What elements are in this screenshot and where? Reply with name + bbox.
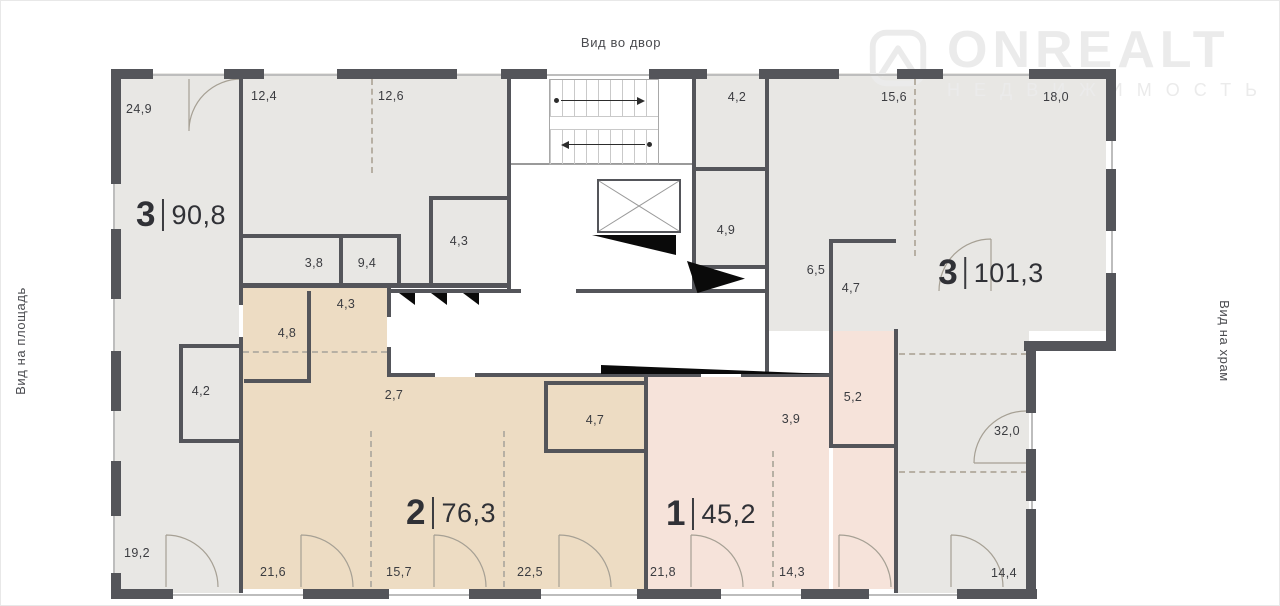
wall-segment [241, 283, 511, 288]
wall-pier [111, 351, 121, 411]
wall-pier [111, 461, 121, 516]
door-leaf-marker [399, 293, 415, 305]
floor-plan: ONREALT НЕДВИЖИМОСТЬ Вид во двор Вид на … [0, 0, 1280, 606]
room-area-label: 4,9 [717, 223, 736, 237]
window-line [111, 594, 1036, 596]
wall-segment [829, 444, 896, 448]
wall-segment [894, 329, 898, 593]
wall-segment [829, 239, 896, 243]
apartment-label-divider [965, 257, 967, 289]
wall-pier [1106, 169, 1116, 231]
room-area-label: 12,6 [378, 89, 404, 103]
wall-segment [544, 449, 644, 453]
apartment-region-2-76 [243, 288, 387, 589]
room-area-label: 4,7 [842, 281, 861, 295]
wall-segment [387, 287, 391, 317]
wall-segment [692, 73, 696, 293]
wall-segment [239, 73, 243, 305]
room-area-label: 14,4 [991, 566, 1017, 580]
room-area-label: 3,8 [305, 256, 324, 270]
apartment-area: 76,3 [441, 498, 496, 529]
partition-dashed [370, 431, 372, 587]
wall-segment [507, 73, 511, 293]
apartment-rooms-count: 2 [406, 493, 425, 533]
wall-segment [179, 344, 241, 348]
wall-segment [389, 289, 521, 293]
room-area-label: 3,9 [782, 412, 801, 426]
wall-pier [303, 589, 389, 599]
wall-pier [224, 69, 264, 79]
room-area-label: 4,7 [586, 413, 605, 427]
apartment-label-1-45: 1 45,2 [666, 494, 756, 534]
apartment-region-3-90 [115, 73, 239, 593]
apartment-label-divider [162, 199, 164, 231]
room-area-label: 18,0 [1043, 90, 1069, 104]
wall-pier [1026, 449, 1036, 501]
apartment-rooms-count: 3 [136, 195, 155, 235]
room-area-label: 22,5 [517, 565, 543, 579]
elevator-shaft [597, 179, 681, 233]
room-area-label: 5,2 [844, 390, 863, 404]
wall-pier [1024, 341, 1116, 351]
wall-pier [111, 229, 121, 299]
apartment-area: 101,3 [974, 258, 1044, 289]
room-area-label: 32,0 [994, 424, 1020, 438]
partition-dashed [503, 431, 505, 587]
room-area-label: 21,6 [260, 565, 286, 579]
wall-pier [759, 69, 839, 79]
elevator-door-marker [592, 235, 676, 255]
onrealt-logo-icon [863, 23, 933, 93]
room-area-label: 24,9 [126, 102, 152, 116]
wall-segment [397, 234, 401, 287]
apartment-rooms-count: 1 [666, 494, 685, 534]
apartment-area: 90,8 [171, 200, 226, 231]
wall-segment [429, 196, 511, 200]
wall-segment [544, 381, 644, 385]
wall-segment [387, 373, 435, 377]
wall-segment [765, 73, 769, 377]
wall-pier [957, 589, 1037, 599]
view-label-courtyard: Вид во двор [581, 35, 661, 50]
apartment-label-divider [432, 497, 434, 529]
stair-direction-arrow [561, 141, 645, 149]
partition-dashed [243, 351, 387, 353]
room-area-label: 4,3 [337, 297, 356, 311]
wall-pier [649, 69, 707, 79]
wall-pier [637, 589, 721, 599]
partition-dashed [914, 79, 916, 256]
room-area-label: 6,5 [807, 263, 826, 277]
wall-segment [179, 344, 183, 443]
apartment-rooms-count: 3 [938, 253, 957, 293]
wall-segment [829, 239, 833, 448]
room-area-label: 12,4 [251, 89, 277, 103]
staircase [549, 79, 659, 165]
room-area-label: 4,8 [278, 326, 297, 340]
wall-segment [179, 439, 241, 443]
room-area-label: 4,2 [728, 90, 747, 104]
wall-segment [244, 379, 310, 383]
wall-pier [111, 69, 121, 184]
wall-pier [1026, 351, 1036, 413]
onrealt-logo: ONREALT НЕДВИЖИМОСТЬ [863, 23, 1271, 101]
wall-pier [337, 69, 457, 79]
partition-dashed [899, 353, 1027, 355]
door-leaf-marker [431, 293, 447, 305]
apartment-label-divider [692, 498, 694, 530]
wall-pier [801, 589, 869, 599]
wall-pier [1106, 273, 1116, 345]
partition-dashed [772, 451, 774, 587]
wall-segment [339, 234, 343, 287]
wall-segment [644, 375, 648, 593]
wall-pier [111, 589, 173, 599]
wall-segment [239, 337, 243, 593]
wall-pier [897, 69, 943, 79]
apartment-region-1-45 [833, 331, 894, 444]
wall-segment [695, 167, 765, 171]
apartment-region-1-45 [833, 448, 894, 589]
room-area-label: 19,2 [124, 546, 150, 560]
apartment-region-1-45 [648, 377, 829, 589]
wall-pier [1106, 69, 1116, 141]
wall-segment [307, 291, 311, 383]
wall-pier [1026, 509, 1036, 589]
stair-direction-arrow [561, 97, 645, 105]
wall-pier [469, 589, 541, 599]
apartment-region-2-76 [387, 377, 644, 589]
apartment-region-3-90 [239, 73, 507, 287]
apartment-label-3-90: 3 90,8 [136, 195, 226, 235]
apartment-label-3-101: 3 101,3 [938, 253, 1044, 293]
view-label-temple: Вид на храм [1217, 300, 1232, 382]
room-area-label: 4,2 [192, 384, 211, 398]
room-area-label: 15,7 [386, 565, 412, 579]
wall-segment [576, 289, 769, 293]
wall-segment [429, 196, 433, 287]
view-label-square: Вид на площадь [13, 287, 28, 395]
room-area-label: 4,3 [450, 234, 469, 248]
apartment-region-3-101 [897, 331, 1029, 593]
room-area-label: 9,4 [358, 256, 377, 270]
door-leaf-marker [463, 293, 479, 305]
wall-segment [241, 234, 401, 238]
wall-segment [544, 381, 548, 453]
room-area-label: 14,3 [779, 565, 805, 579]
wall-pier [501, 69, 547, 79]
apartment-area: 45,2 [701, 499, 756, 530]
partition-dashed [371, 79, 373, 173]
stair-landing [550, 116, 658, 130]
partition-dashed [899, 471, 1027, 473]
wall-pier [1029, 69, 1116, 79]
room-area-label: 2,7 [385, 388, 404, 402]
room-area-label: 15,6 [881, 90, 907, 104]
room-area-label: 21,8 [650, 565, 676, 579]
apartment-label-2-76: 2 76,3 [406, 493, 496, 533]
